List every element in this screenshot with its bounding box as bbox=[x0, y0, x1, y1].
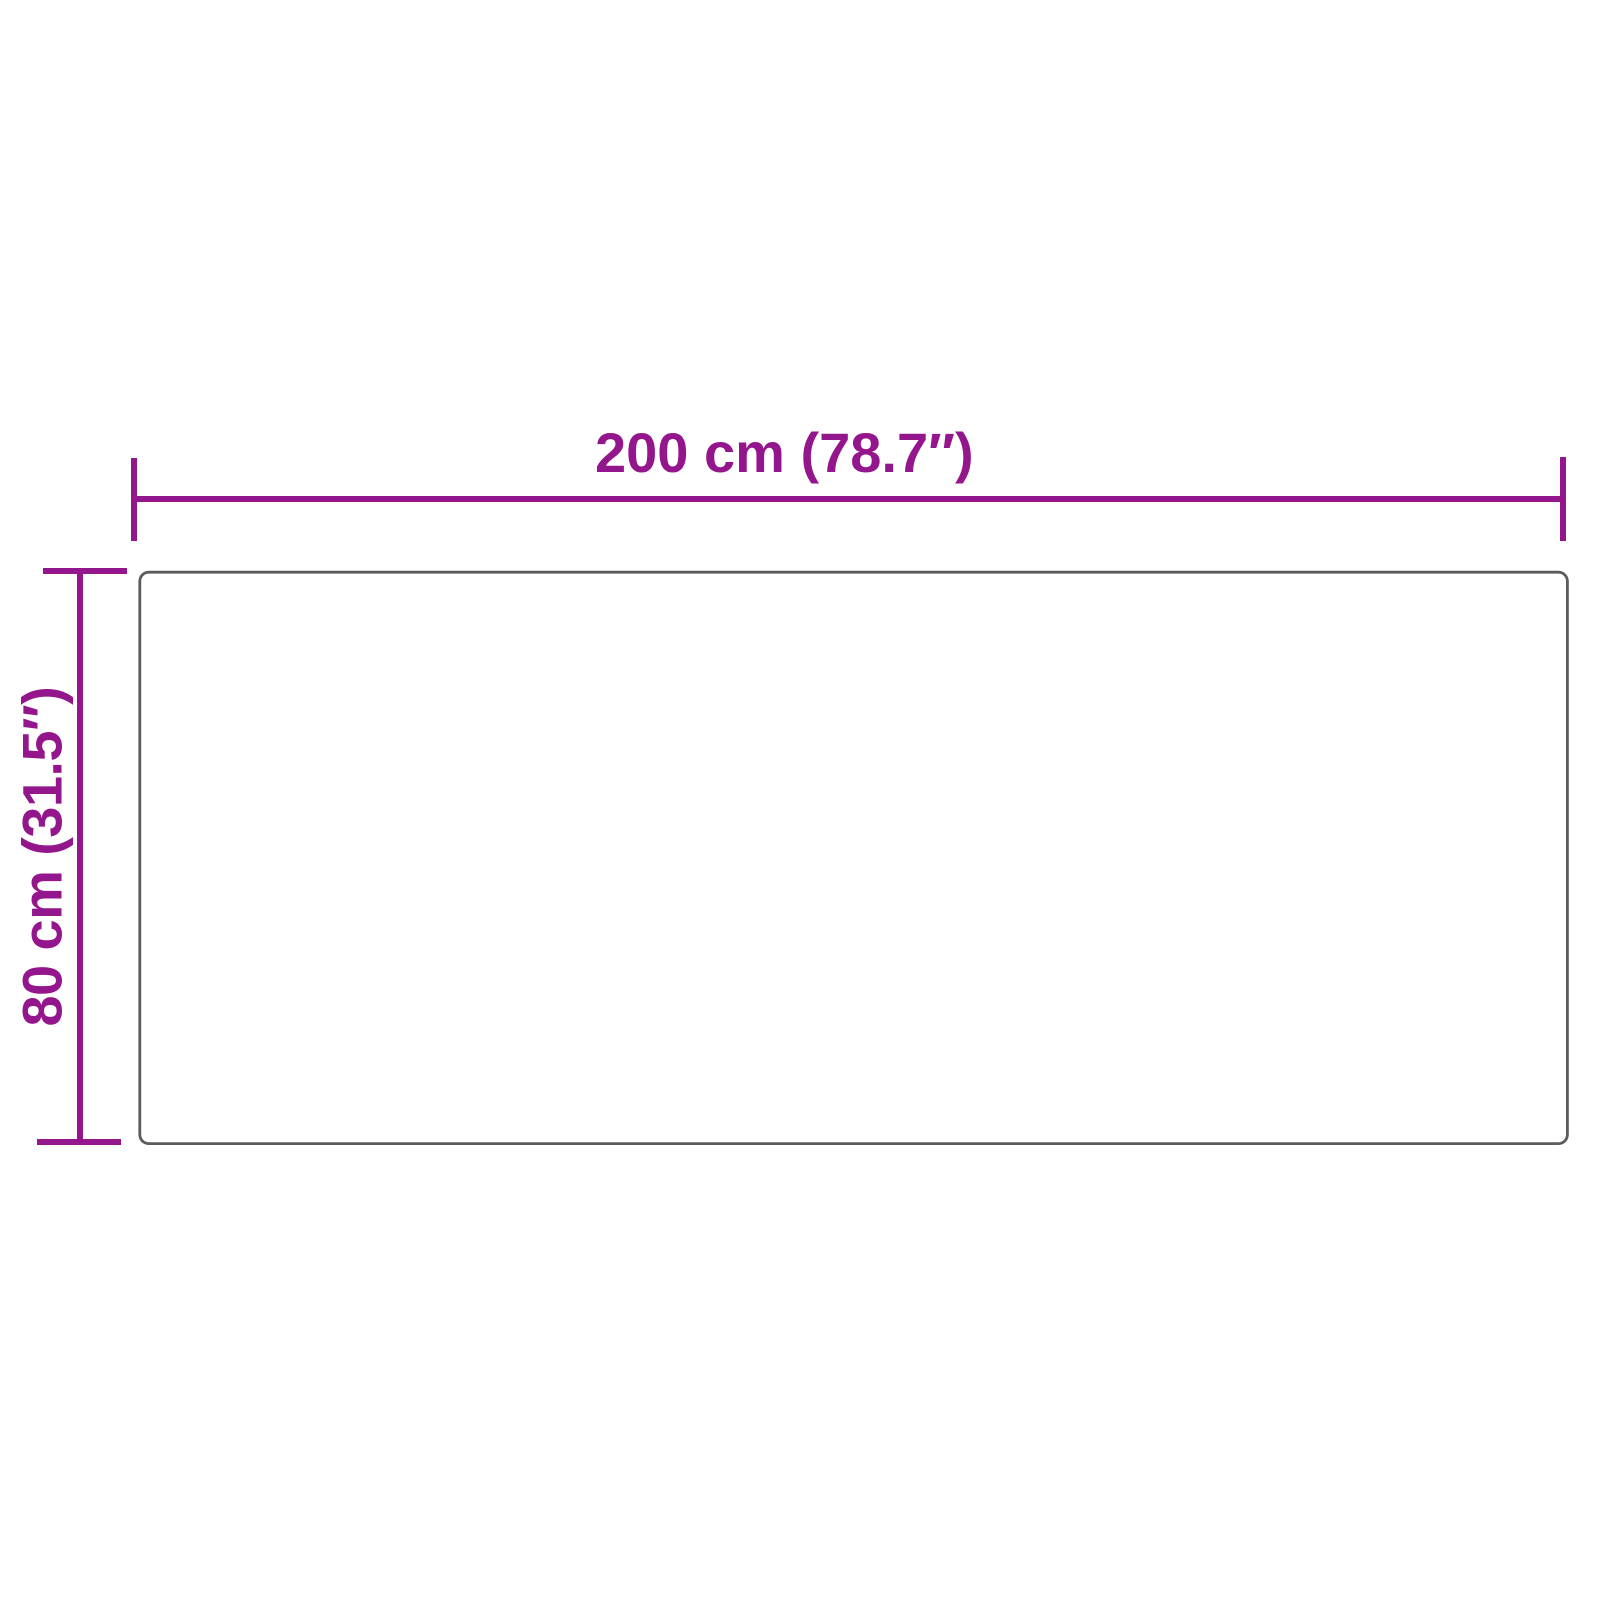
svg-text:200 cm (78.7″): 200 cm (78.7″) bbox=[595, 421, 974, 484]
svg-text:80 cm (31.5″): 80 cm (31.5″) bbox=[11, 687, 74, 1027]
